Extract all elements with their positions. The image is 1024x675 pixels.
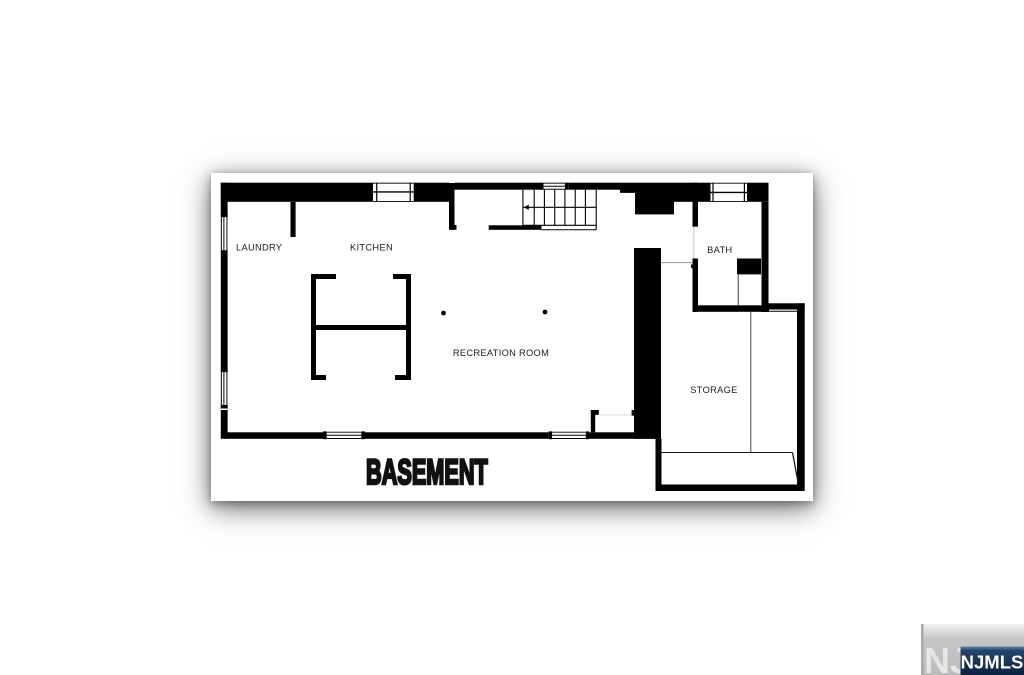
svg-text:RECREATION ROOM: RECREATION ROOM (453, 348, 549, 358)
svg-text:LAUNDRY: LAUNDRY (236, 242, 282, 252)
svg-text:BATH: BATH (707, 245, 732, 255)
svg-text:BASEMENT: BASEMENT (366, 454, 488, 492)
svg-text:STORAGE: STORAGE (690, 385, 737, 395)
svg-text:KITCHEN: KITCHEN (350, 242, 393, 252)
svg-text:NJMLS: NJMLS (961, 652, 1024, 673)
